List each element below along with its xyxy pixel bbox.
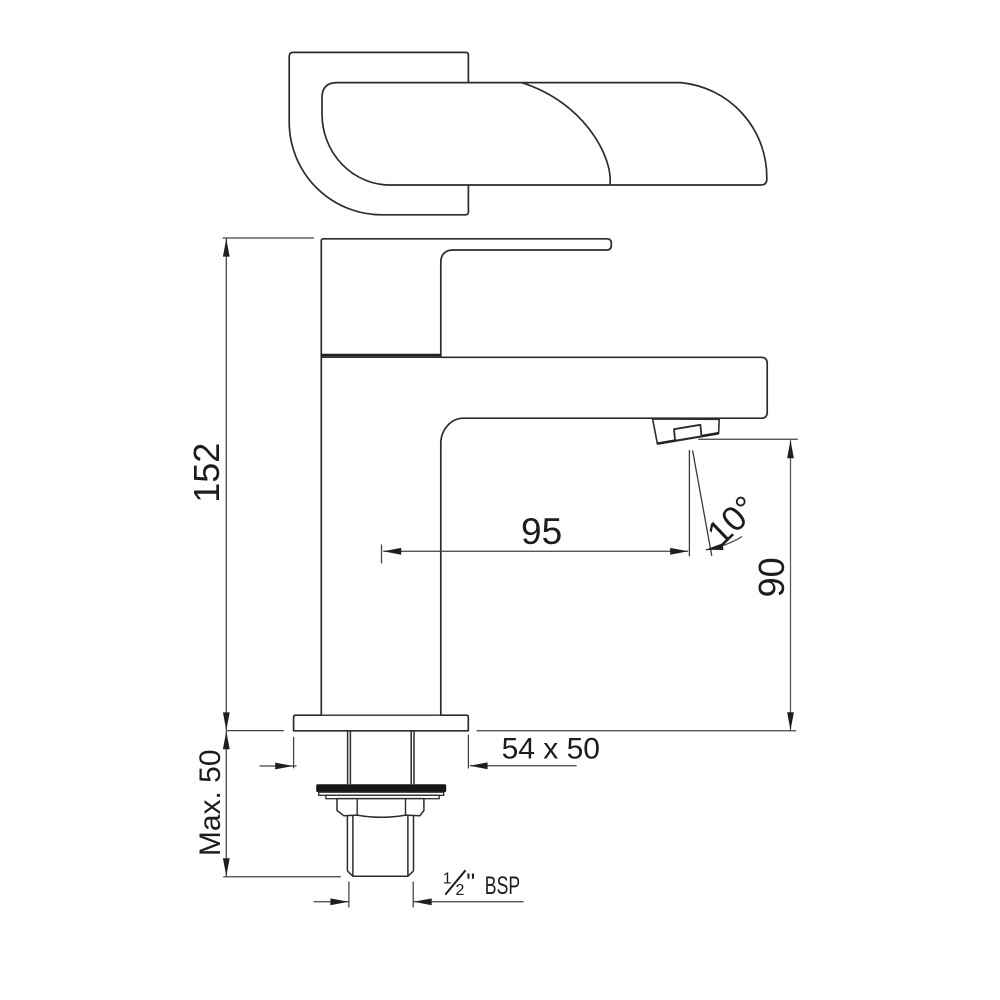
svg-text:Max. 50: Max. 50 xyxy=(194,749,227,856)
svg-text:BSP: BSP xyxy=(485,872,520,900)
svg-text:2: 2 xyxy=(456,882,465,899)
svg-text:1: 1 xyxy=(443,871,452,888)
svg-text:90: 90 xyxy=(751,557,792,597)
svg-text:152: 152 xyxy=(186,443,227,503)
svg-text:54 x 50: 54 x 50 xyxy=(502,733,600,766)
svg-text:": " xyxy=(466,869,475,897)
svg-text:95: 95 xyxy=(521,511,562,552)
